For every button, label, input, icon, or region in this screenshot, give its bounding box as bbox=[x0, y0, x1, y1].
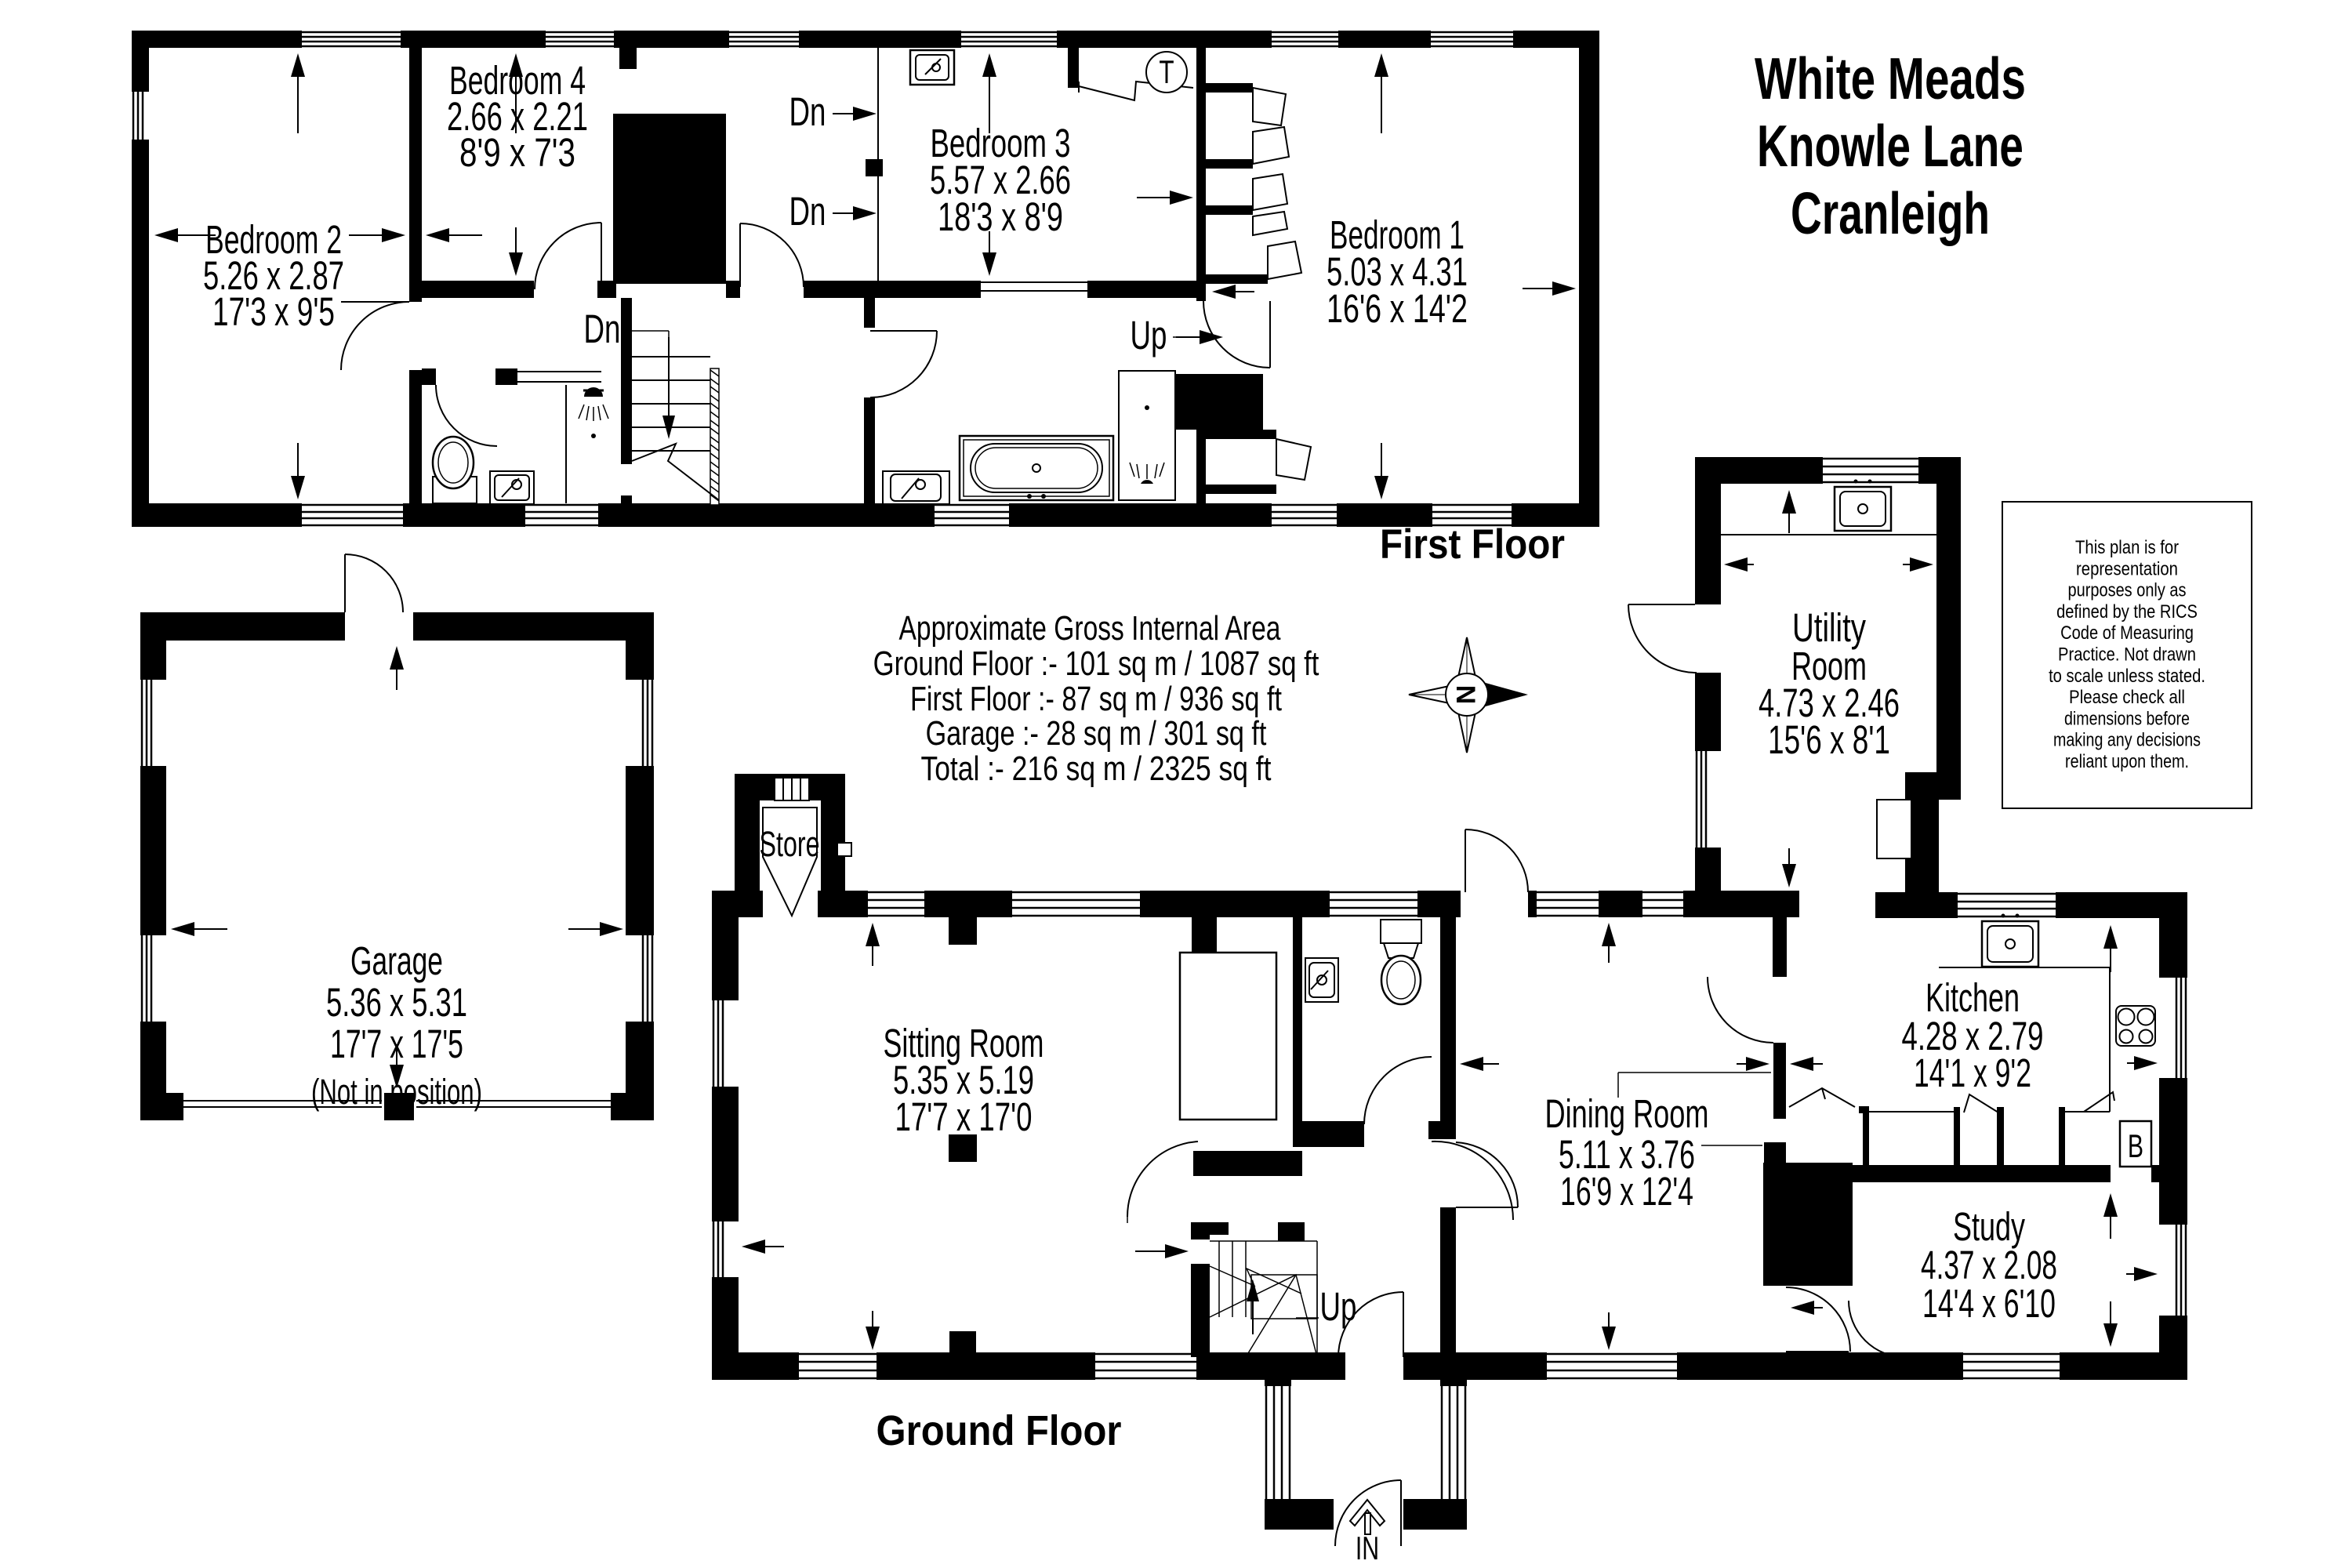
svg-text:Practice. Not drawn: Practice. Not drawn bbox=[2058, 644, 2196, 665]
svg-text:Dining Room: Dining Room bbox=[1545, 1092, 1709, 1137]
svg-text:Up: Up bbox=[1320, 1285, 1357, 1329]
svg-text:Utility: Utility bbox=[1792, 605, 1866, 651]
svg-text:First Floor: First Floor bbox=[1380, 521, 1565, 568]
svg-text:Ground Floor: Ground Floor bbox=[877, 1406, 1122, 1454]
svg-text:18'3 x 8'9: 18'3 x 8'9 bbox=[938, 194, 1063, 239]
svg-text:16'9 x 12'4: 16'9 x 12'4 bbox=[1560, 1170, 1693, 1214]
svg-text:15'6 x 8'1: 15'6 x 8'1 bbox=[1768, 718, 1890, 762]
svg-text:Dn: Dn bbox=[789, 90, 826, 134]
svg-text:Approximate Gross Internal Are: Approximate Gross Internal Area bbox=[899, 610, 1281, 648]
svg-text:N: N bbox=[1450, 685, 1480, 705]
svg-text:Knowle Lane: Knowle Lane bbox=[1757, 113, 2024, 179]
svg-text:Code of Measuring: Code of Measuring bbox=[2060, 622, 2194, 644]
svg-text:to scale unless stated.: to scale unless stated. bbox=[2049, 665, 2205, 686]
svg-text:14'4 x 6'10: 14'4 x 6'10 bbox=[1922, 1282, 2056, 1327]
svg-text:B: B bbox=[2128, 1127, 2143, 1164]
svg-text:Garage :- 28 sq m / 301 sq ft: Garage :- 28 sq m / 301 sq ft bbox=[926, 714, 1267, 753]
svg-text:White Meads: White Meads bbox=[1755, 46, 2026, 112]
svg-text:making any decisions: making any decisions bbox=[2053, 729, 2201, 750]
svg-text:Garage: Garage bbox=[350, 939, 443, 984]
svg-text:reliant upon them.: reliant upon them. bbox=[2065, 750, 2189, 771]
svg-text:purposes only as: purposes only as bbox=[2068, 579, 2187, 601]
svg-text:Cranleigh: Cranleigh bbox=[1791, 180, 1990, 246]
svg-text:First Floor :- 87 sq m / 936 s: First Floor :- 87 sq m / 936 sq ft bbox=[910, 680, 1282, 718]
svg-text:17'3 x 9'5: 17'3 x 9'5 bbox=[212, 290, 335, 334]
svg-text:Dn: Dn bbox=[584, 307, 621, 351]
svg-text:This plan is for: This plan is for bbox=[2075, 536, 2180, 557]
svg-text:Dn: Dn bbox=[789, 190, 826, 234]
svg-text:Ground Floor :- 101 sq m / 108: Ground Floor :- 101 sq m / 1087 sq ft bbox=[873, 644, 1319, 683]
svg-text:8'9 x 7'3: 8'9 x 7'3 bbox=[459, 129, 575, 175]
svg-text:14'1 x 9'2: 14'1 x 9'2 bbox=[1914, 1051, 2031, 1096]
svg-text:Store: Store bbox=[760, 826, 820, 864]
svg-text:IN: IN bbox=[1356, 1530, 1379, 1566]
svg-text:Total :- 216 sq m / 2325 sq ft: Total :- 216 sq m / 2325 sq ft bbox=[921, 750, 1272, 787]
svg-text:16'6 x 14'2: 16'6 x 14'2 bbox=[1327, 285, 1468, 331]
svg-text:dimensions before: dimensions before bbox=[2064, 707, 2190, 728]
svg-text:17'7 x 17'0: 17'7 x 17'0 bbox=[895, 1095, 1032, 1139]
svg-text:5.36 x 5.31: 5.36 x 5.31 bbox=[326, 981, 467, 1025]
svg-text:T: T bbox=[1159, 53, 1174, 91]
svg-text:Up: Up bbox=[1131, 314, 1167, 358]
svg-text:Kitchen: Kitchen bbox=[1926, 976, 2020, 1021]
svg-text:Please check all: Please check all bbox=[2069, 687, 2185, 708]
svg-text:representation: representation bbox=[2076, 558, 2178, 579]
svg-text:defined by the RICS: defined by the RICS bbox=[2056, 601, 2198, 622]
